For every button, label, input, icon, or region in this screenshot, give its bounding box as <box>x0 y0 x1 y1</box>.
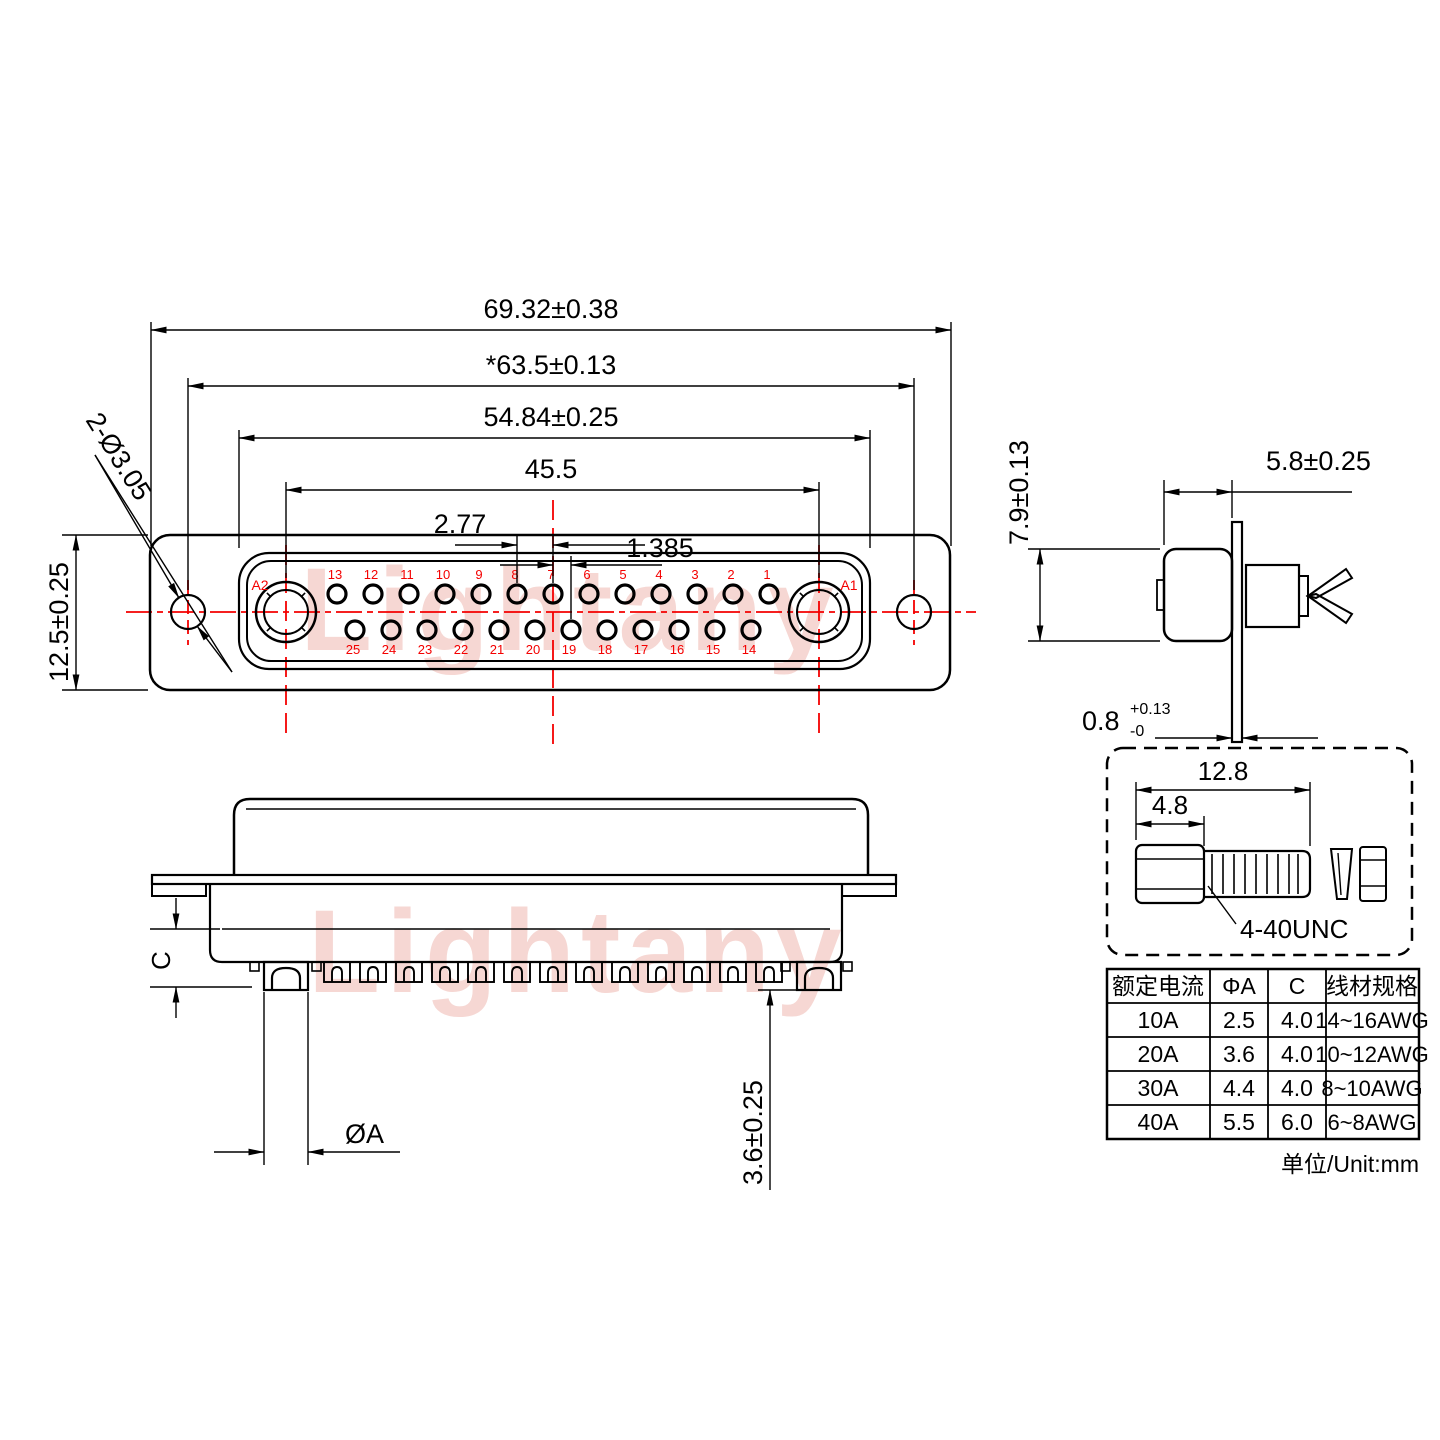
pin-label: 19 <box>562 642 576 657</box>
pin-label: 5 <box>619 567 626 582</box>
pin-label: 25 <box>346 642 360 657</box>
dim-row-offset: 1.385 <box>626 533 694 563</box>
table-cell: 6~8AWG <box>1327 1110 1416 1135</box>
pin-label: 21 <box>490 642 504 657</box>
dim-screw-head: 4.8 <box>1152 790 1188 820</box>
table-cell: 5.5 <box>1223 1109 1255 1135</box>
engineering-drawing-page: Lightany Lightany <box>0 0 1440 1440</box>
pin-label: 22 <box>454 642 468 657</box>
section-hood <box>234 799 868 875</box>
coax-label-a1: A1 <box>840 577 857 593</box>
side-rear-block <box>1246 565 1299 627</box>
pin-label: 16 <box>670 642 684 657</box>
table-header-diameter: ΦA <box>1222 973 1256 999</box>
dim-overall-width: 69.32±0.38 <box>484 294 619 324</box>
pin-label: 18 <box>598 642 612 657</box>
section-flange-tab-left <box>152 884 206 896</box>
pin-label: 24 <box>382 642 396 657</box>
table-cell: 4.4 <box>1223 1075 1255 1101</box>
dim-tail-length: 3.6±0.25 <box>738 1080 768 1185</box>
pin-label: 4 <box>655 567 662 582</box>
watermark-section-view: Lightany <box>308 886 848 1018</box>
table-cell: 4.0 <box>1281 1041 1313 1067</box>
pin-label: 13 <box>328 567 342 582</box>
dim-shell-width: 54.84±0.25 <box>484 402 619 432</box>
coax-label-a2: A2 <box>251 577 268 593</box>
pin-label: 1 <box>763 567 770 582</box>
dim-mount-hole-span: *63.5±0.13 <box>486 350 616 380</box>
pin-label: 6 <box>583 567 590 582</box>
pin-label: 11 <box>400 567 414 582</box>
pin-label: 2 <box>727 567 734 582</box>
pin-label: 14 <box>742 642 756 657</box>
section-flange-plate <box>152 875 896 884</box>
table-header-c: C <box>1289 973 1306 999</box>
table-cell: 2.5 <box>1223 1007 1255 1033</box>
pin-label: 12 <box>364 567 378 582</box>
table-cell: 8~10AWG <box>1321 1076 1422 1101</box>
side-view-dimensions <box>1028 480 1352 738</box>
pin-label: 3 <box>691 567 698 582</box>
pin-label: 10 <box>436 567 450 582</box>
units-note: 单位/Unit:mm <box>1281 1151 1419 1177</box>
dim-pin-pitch: 2.77 <box>434 509 487 539</box>
pin-label: 15 <box>706 642 720 657</box>
side-flange-plate <box>1232 522 1242 742</box>
table-cell: 3.6 <box>1223 1041 1255 1067</box>
dim-mount-hole: 2-Ø3.05 <box>80 407 157 505</box>
dim-flange-tol-plus: +0.13 <box>1130 701 1171 718</box>
screw-thread-label: 4-40UNC <box>1240 914 1348 944</box>
table-cell: 40A <box>1138 1109 1180 1135</box>
pin-label: 9 <box>475 567 482 582</box>
dim-cup-depth: C <box>146 951 176 970</box>
dim-cup-diameter: ØA <box>345 1119 384 1149</box>
table-header-wire: 线材规格 <box>1326 973 1418 999</box>
side-body <box>1164 549 1232 641</box>
pin-label: 23 <box>418 642 432 657</box>
drawing-svg: Lightany Lightany <box>0 0 1440 1440</box>
dim-flange-thickness: 0.8 <box>1082 706 1120 736</box>
pin-label: 17 <box>634 642 648 657</box>
pin-label: 20 <box>526 642 540 657</box>
table-cell: 6.0 <box>1281 1109 1313 1135</box>
screw-washer-wedge <box>1331 849 1352 899</box>
table-cell: 4.0 <box>1281 1007 1313 1033</box>
section-flange-tab-right <box>842 884 896 896</box>
dim-flange-tol-minus: -0 <box>1130 723 1144 740</box>
table-cell: 4.0 <box>1281 1075 1313 1101</box>
dim-screw-overall: 12.8 <box>1198 756 1249 786</box>
spec-table-text: 额定电流 ΦA C 线材规格 10A 2.5 4.0 14~16AWG 20A … <box>1112 973 1429 1135</box>
screw-thread-shaft <box>1204 851 1310 897</box>
dim-flange-height: 12.5±0.25 <box>44 562 74 682</box>
screw-nut-cylinder <box>1360 847 1386 901</box>
dim-shell-depth: 5.8±0.25 <box>1266 446 1371 476</box>
side-view <box>1157 522 1352 742</box>
table-cell: 10~12AWG <box>1315 1042 1429 1067</box>
table-cell: 30A <box>1138 1075 1180 1101</box>
screw-head <box>1136 845 1204 903</box>
dim-body-height: 7.9±0.13 <box>1004 440 1034 545</box>
table-cell: 20A <box>1138 1041 1180 1067</box>
table-cell: 14~16AWG <box>1315 1008 1429 1033</box>
dim-contact-span: 45.5 <box>525 454 578 484</box>
table-header-current: 额定电流 <box>1112 973 1204 999</box>
table-cell: 10A <box>1138 1007 1180 1033</box>
